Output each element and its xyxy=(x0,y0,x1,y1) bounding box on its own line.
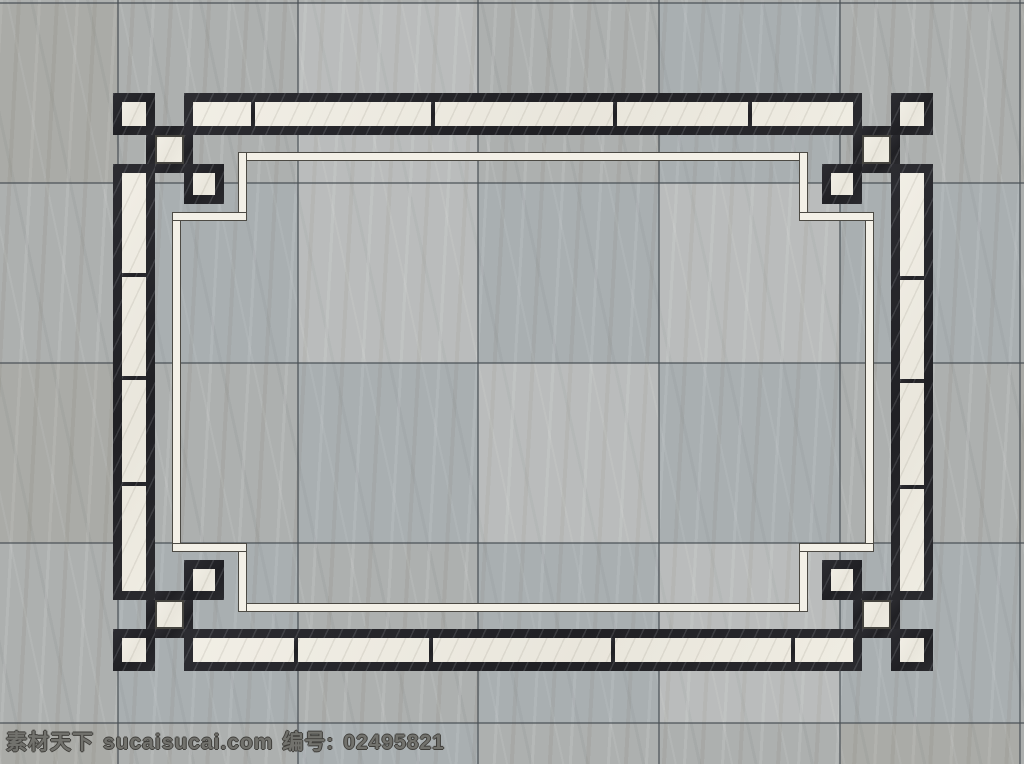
floor-tile xyxy=(478,183,659,363)
accent-line-segment xyxy=(799,543,808,612)
corner-weave-stripe xyxy=(146,135,155,164)
top-band-inlay xyxy=(193,102,853,126)
corner-weave-stripe xyxy=(862,126,891,135)
watermark: 素材天下sucaisucai.com编号:02495821 xyxy=(6,726,454,758)
corner-small-square xyxy=(862,135,891,164)
left-band-joint xyxy=(122,482,146,486)
bottom-band-joint xyxy=(791,638,795,662)
floor-tile xyxy=(298,183,478,363)
corner-inner-square-inlay xyxy=(831,173,853,195)
corner-weave-stripe xyxy=(853,600,862,629)
corner-small-square xyxy=(862,600,891,629)
top-band-joint xyxy=(613,102,617,126)
floor-tile xyxy=(840,723,1020,764)
right-band-joint xyxy=(900,379,924,383)
top-band-joint xyxy=(251,102,255,126)
left-band-inlay xyxy=(122,173,146,591)
bottom-band-inlay xyxy=(193,638,853,662)
floor-tile xyxy=(0,363,118,543)
floor-tile xyxy=(298,363,478,543)
corner-weave-stripe xyxy=(891,135,900,164)
floor-tile xyxy=(659,183,840,363)
bottom-band-joint xyxy=(294,638,298,662)
corner-inner-square-inlay xyxy=(193,173,215,195)
corner-small-square xyxy=(155,600,184,629)
floor-tile xyxy=(478,363,659,543)
watermark-id-label: 编号: xyxy=(282,731,334,754)
tile-grid-line xyxy=(1019,0,1021,764)
tile-grid-line xyxy=(0,2,1024,4)
corner-small-square xyxy=(155,135,184,164)
corner-weave-stripe xyxy=(155,164,184,173)
corner-weave-stripe xyxy=(155,629,184,638)
floor-tile xyxy=(659,363,840,543)
watermark-id-value: 02495821 xyxy=(343,731,444,754)
accent-line-segment xyxy=(799,543,874,552)
top-band-joint xyxy=(431,102,435,126)
accent-line-segment xyxy=(172,212,181,552)
corner-weave-stripe xyxy=(862,164,891,173)
corner-weave-stripe xyxy=(146,600,155,629)
accent-line-segment xyxy=(243,152,803,161)
floor-tile xyxy=(0,3,118,183)
left-band-joint xyxy=(122,376,146,380)
corner-weave-stripe xyxy=(155,126,184,135)
corner-outer-square-inlay xyxy=(900,638,924,662)
corner-weave-stripe xyxy=(862,629,891,638)
corner-inner-square-inlay xyxy=(831,569,853,591)
corner-outer-square-inlay xyxy=(122,638,146,662)
corner-inner-square-inlay xyxy=(193,569,215,591)
accent-line-segment xyxy=(799,152,808,221)
corner-weave-stripe xyxy=(184,135,193,164)
corner-weave-stripe xyxy=(184,600,193,629)
right-band-joint xyxy=(900,485,924,489)
corner-outer-square-inlay xyxy=(122,102,146,126)
accent-line-segment xyxy=(799,212,874,221)
corner-weave-stripe xyxy=(862,591,891,600)
accent-line-segment xyxy=(172,543,247,552)
accent-line-segment xyxy=(865,212,874,552)
corner-weave-stripe xyxy=(891,600,900,629)
watermark-site-name: 素材天下 xyxy=(6,731,94,754)
accent-line-segment xyxy=(238,543,247,612)
bottom-band-joint xyxy=(611,638,615,662)
accent-line-segment xyxy=(243,603,803,612)
bottom-band-joint xyxy=(429,638,433,662)
right-band-joint xyxy=(900,276,924,280)
corner-weave-stripe xyxy=(155,591,184,600)
accent-line-segment xyxy=(172,212,247,221)
accent-line-segment xyxy=(238,152,247,221)
left-band-joint xyxy=(122,273,146,277)
tile-grid-line xyxy=(0,722,1024,724)
corner-outer-square-inlay xyxy=(900,102,924,126)
top-band-joint xyxy=(748,102,752,126)
floor-paving-preview: 素材天下sucaisucai.com编号:02495821 xyxy=(0,0,1024,764)
corner-weave-stripe xyxy=(853,135,862,164)
watermark-domain: sucaisucai.com xyxy=(103,731,273,754)
